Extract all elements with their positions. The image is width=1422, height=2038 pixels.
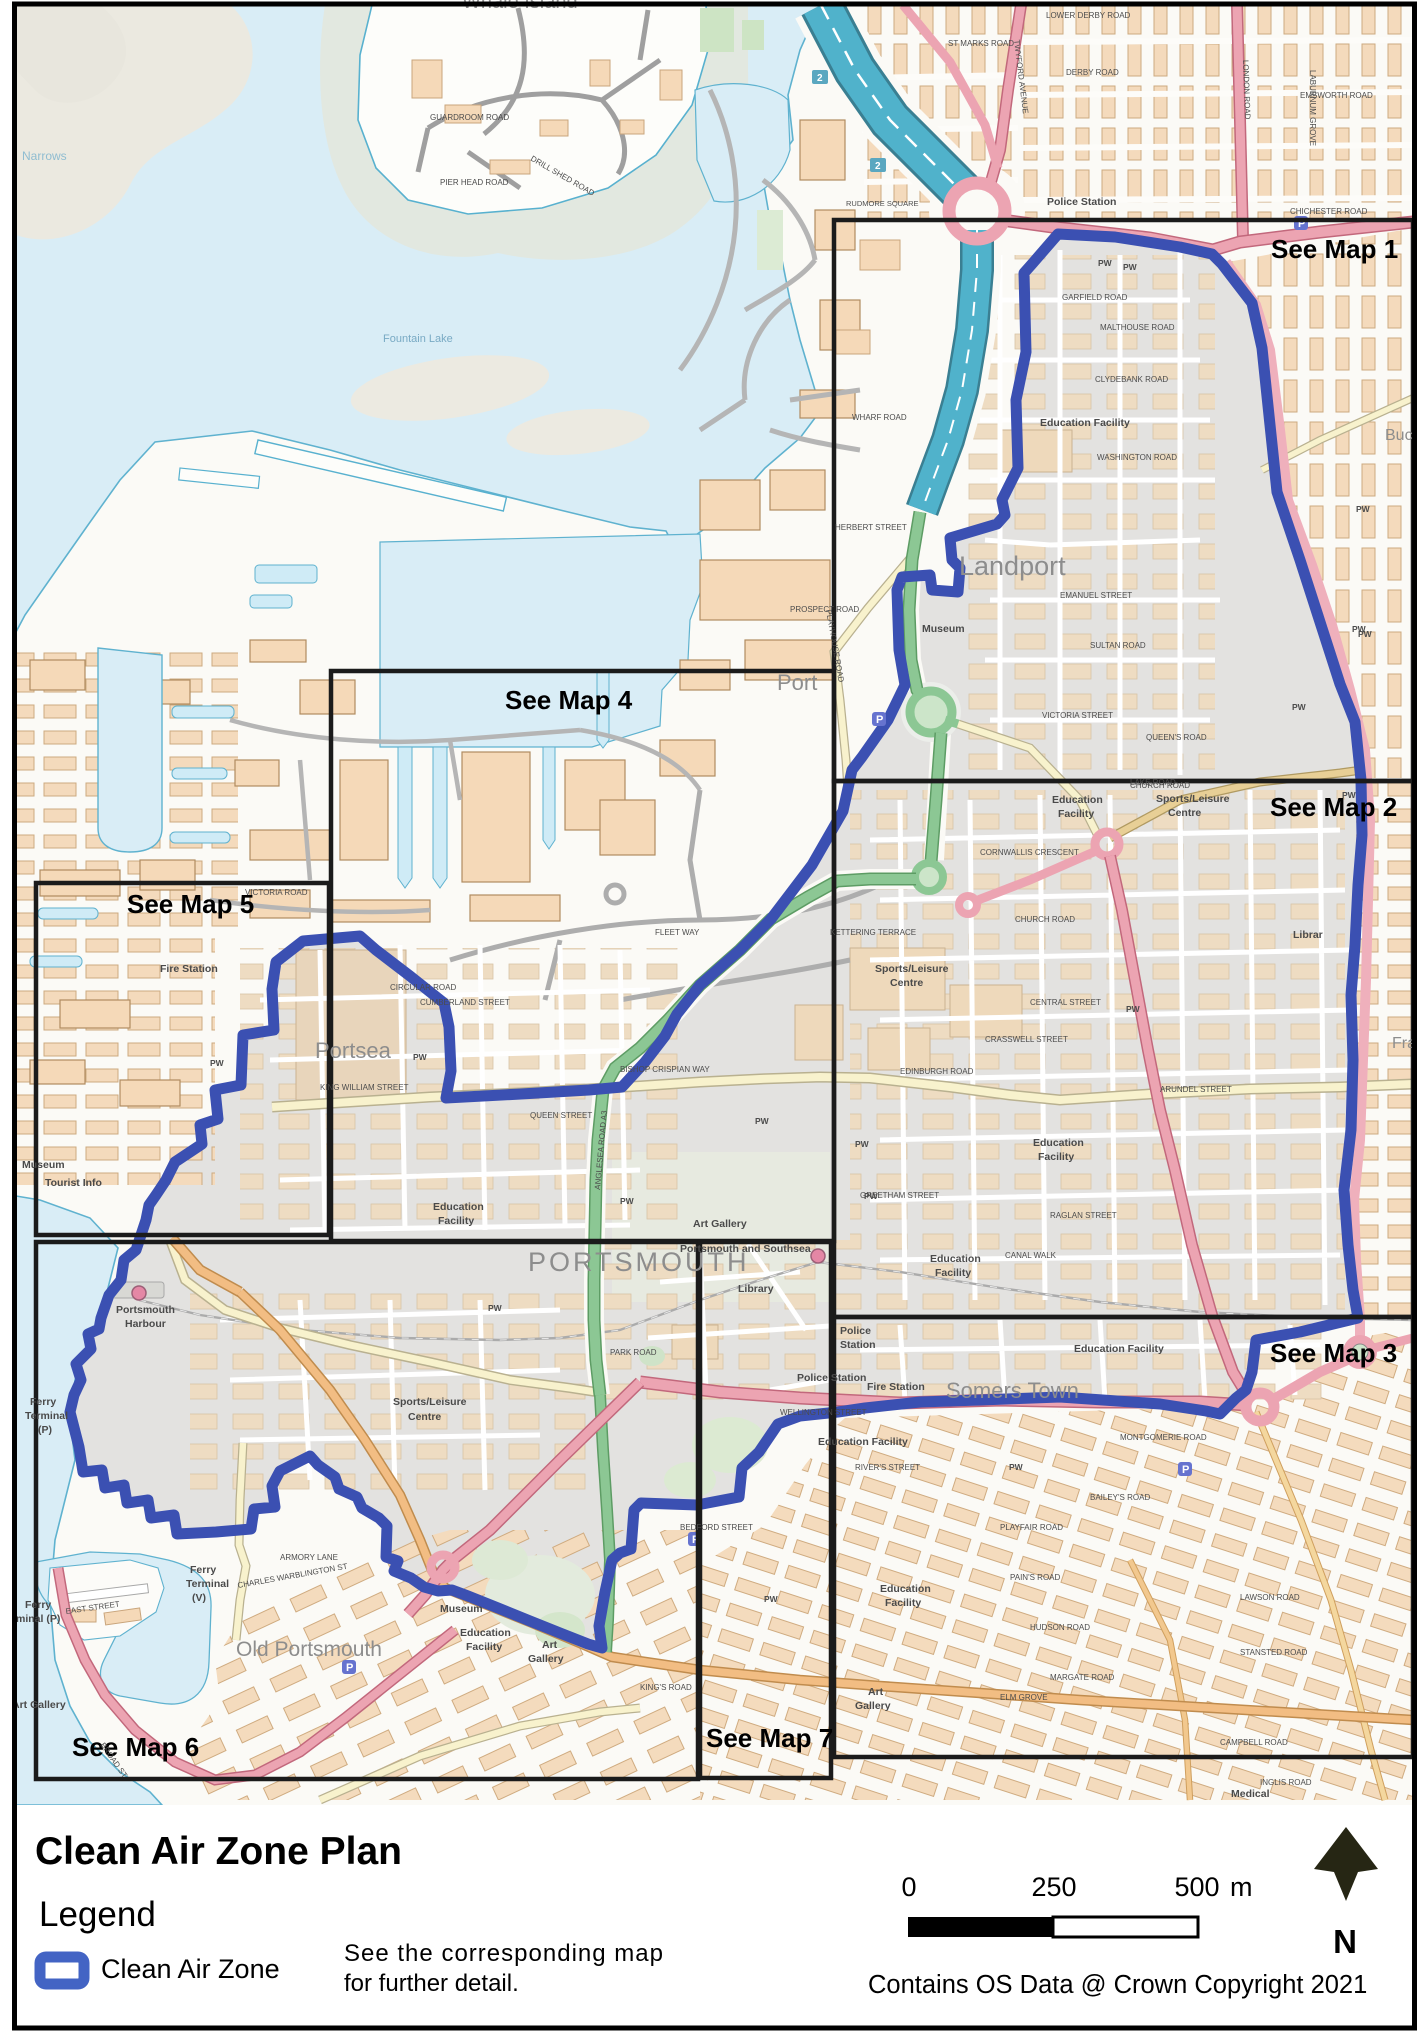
svg-text:Education Facility: Education Facility — [818, 1436, 908, 1448]
svg-text:Centre: Centre — [890, 977, 923, 989]
svg-text:PW: PW — [764, 1594, 779, 1604]
svg-text:WHARF ROAD: WHARF ROAD — [852, 413, 907, 422]
svg-text:CORNWALLIS CRESCENT: CORNWALLIS CRESCENT — [980, 848, 1079, 857]
svg-text:Landport: Landport — [959, 551, 1066, 581]
svg-text:Fire Station: Fire Station — [867, 1381, 925, 1393]
svg-text:Police Station: Police Station — [1047, 196, 1116, 208]
svg-text:PW: PW — [1098, 258, 1113, 268]
svg-text:MONTGOMERIE ROAD: MONTGOMERIE ROAD — [1120, 1433, 1207, 1442]
svg-text:Station: Station — [840, 1339, 876, 1351]
svg-text:PLAYFAIR ROAD: PLAYFAIR ROAD — [1000, 1523, 1063, 1532]
svg-text:VICTORIA ROAD: VICTORIA ROAD — [245, 888, 308, 897]
svg-text:See Map 6: See Map 6 — [72, 1732, 199, 1762]
svg-text:PW: PW — [210, 1058, 225, 1068]
svg-text:minal (P): minal (P) — [16, 1613, 60, 1625]
svg-text:PARK ROAD: PARK ROAD — [610, 1348, 657, 1357]
svg-text:Fountain Lake: Fountain Lake — [383, 333, 453, 345]
svg-text:EMANUEL STREET: EMANUEL STREET — [1060, 591, 1132, 600]
svg-text:See the corresponding map: See the corresponding map — [344, 1940, 663, 1967]
svg-text:PW: PW — [1123, 262, 1138, 272]
svg-text:CENTRAL STREET: CENTRAL STREET — [1030, 998, 1101, 1007]
svg-text:KETTERING TERRACE: KETTERING TERRACE — [830, 928, 916, 937]
svg-text:2: 2 — [817, 73, 823, 84]
svg-text:WASHINGTON ROAD: WASHINGTON ROAD — [1097, 453, 1177, 462]
svg-text:See Map 3: See Map 3 — [1270, 1338, 1397, 1368]
svg-text:Librar: Librar — [1293, 929, 1323, 941]
svg-text:Centre: Centre — [1168, 807, 1201, 819]
svg-text:QUEEN STREET: QUEEN STREET — [530, 1111, 592, 1120]
svg-text:Library: Library — [738, 1283, 774, 1295]
svg-text:PW: PW — [1356, 504, 1371, 514]
svg-text:Museum: Museum — [440, 1603, 483, 1615]
svg-text:Facility: Facility — [1058, 808, 1094, 820]
svg-text:Somers Town: Somers Town — [946, 1378, 1079, 1403]
svg-text:See Map 2: See Map 2 — [1270, 792, 1397, 822]
svg-text:BISHOP CRISPIAN WAY: BISHOP CRISPIAN WAY — [620, 1065, 710, 1074]
svg-text:PIER HEAD ROAD: PIER HEAD ROAD — [440, 178, 509, 187]
svg-text:GUARDROOM ROAD: GUARDROOM ROAD — [430, 113, 509, 122]
svg-text:Sports/Leisure: Sports/Leisure — [1156, 793, 1230, 805]
svg-text:CIRCULAR ROAD: CIRCULAR ROAD — [390, 983, 456, 992]
svg-text:(P): (P) — [38, 1424, 52, 1436]
svg-text:500: 500 — [1174, 1872, 1219, 1902]
svg-text:See Map 1: See Map 1 — [1271, 234, 1398, 264]
svg-text:PW: PW — [1292, 702, 1307, 712]
svg-text:Clean Air Zone: Clean Air Zone — [101, 1954, 280, 1984]
svg-text:BAILEY'S ROAD: BAILEY'S ROAD — [1090, 1493, 1150, 1502]
svg-text:PW: PW — [855, 1139, 870, 1149]
svg-text:Buc: Buc — [1385, 427, 1413, 444]
svg-text:Contains OS Data @ Crown Copyr: Contains OS Data @ Crown Copyright 2021 — [868, 1971, 1367, 1999]
svg-text:Art: Art — [542, 1639, 558, 1651]
svg-text:PW: PW — [413, 1052, 428, 1062]
svg-text:P: P — [876, 714, 883, 726]
svg-text:Ferry: Ferry — [25, 1599, 51, 1611]
svg-text:Education Facility: Education Facility — [1040, 417, 1130, 429]
svg-text:MALTHOUSE ROAD: MALTHOUSE ROAD — [1100, 323, 1175, 332]
svg-text:PW: PW — [1358, 629, 1373, 639]
svg-text:Portsea: Portsea — [315, 1038, 392, 1063]
svg-text:CUMBERLAND STREET: CUMBERLAND STREET — [420, 998, 510, 1007]
svg-text:Portsmouth: Portsmouth — [116, 1304, 175, 1316]
svg-text:Legend: Legend — [39, 1895, 156, 1934]
svg-text:RUDMORE SQUARE: RUDMORE SQUARE — [846, 199, 919, 208]
svg-text:Facility: Facility — [935, 1267, 971, 1279]
svg-text:Police: Police — [840, 1325, 871, 1337]
svg-text:CLYDEBANK ROAD: CLYDEBANK ROAD — [1095, 375, 1168, 384]
svg-text:Police Station: Police Station — [797, 1372, 866, 1384]
svg-text:N: N — [1333, 1923, 1357, 1960]
svg-text:PW: PW — [488, 1303, 503, 1313]
svg-text:Gallery: Gallery — [855, 1700, 891, 1712]
svg-text:Education: Education — [1052, 794, 1103, 806]
svg-text:2: 2 — [875, 161, 881, 172]
svg-text:BEDFORD STREET: BEDFORD STREET — [680, 1523, 753, 1532]
svg-text:Narrows: Narrows — [22, 149, 67, 163]
svg-text:ELM GROVE: ELM GROVE — [1000, 1693, 1048, 1702]
svg-text:m: m — [1230, 1872, 1253, 1902]
svg-text:QUEEN'S ROAD: QUEEN'S ROAD — [1146, 733, 1207, 742]
svg-text:ARMORY LANE: ARMORY LANE — [280, 1553, 338, 1562]
svg-text:See Map 4: See Map 4 — [505, 685, 633, 715]
svg-text:LAKE ROAD: LAKE ROAD — [1130, 778, 1176, 787]
svg-text:KING WILLIAM STREET: KING WILLIAM STREET — [320, 1083, 409, 1092]
svg-text:Terminal: Terminal — [25, 1410, 68, 1422]
svg-text:LOWER DERBY ROAD: LOWER DERBY ROAD — [1046, 11, 1131, 20]
svg-text:INGLIS ROAD: INGLIS ROAD — [1260, 1778, 1312, 1787]
svg-text:EDINBURGH ROAD: EDINBURGH ROAD — [900, 1067, 974, 1076]
svg-text:Tourist Info: Tourist Info — [45, 1177, 102, 1189]
svg-text:PW: PW — [620, 1196, 635, 1206]
svg-text:Education: Education — [460, 1627, 511, 1639]
svg-text:ST MARKS ROAD: ST MARKS ROAD — [948, 39, 1014, 48]
svg-text:PROSPECT ROAD: PROSPECT ROAD — [790, 605, 859, 614]
svg-text:Old Portsmouth: Old Portsmouth — [236, 1638, 382, 1661]
svg-text:(V): (V) — [192, 1592, 206, 1604]
svg-text:SULTAN ROAD: SULTAN ROAD — [1090, 641, 1146, 650]
svg-text:Art: Art — [868, 1686, 884, 1698]
svg-text:EMSWORTH ROAD: EMSWORTH ROAD — [1300, 91, 1373, 100]
svg-text:Ferry: Ferry — [190, 1564, 216, 1576]
svg-text:Facility: Facility — [1038, 1151, 1074, 1163]
svg-text:for further detail.: for further detail. — [344, 1970, 519, 1997]
svg-text:Museum: Museum — [922, 623, 965, 635]
svg-text:Education: Education — [880, 1583, 931, 1595]
svg-text:HUDSON ROAD: HUDSON ROAD — [1030, 1623, 1090, 1632]
svg-text:Fire Station: Fire Station — [160, 963, 218, 975]
svg-text:Museum: Museum — [22, 1159, 65, 1171]
svg-text:CHICHESTER ROAD: CHICHESTER ROAD — [1290, 207, 1368, 216]
svg-text:Centre: Centre — [408, 1411, 441, 1423]
svg-text:See Map 7: See Map 7 — [706, 1723, 833, 1753]
svg-text:PAIN'S ROAD: PAIN'S ROAD — [1010, 1573, 1061, 1582]
svg-text:VICTORIA STREET: VICTORIA STREET — [1042, 711, 1113, 720]
svg-text:WELLINGTON STREET: WELLINGTON STREET — [780, 1408, 867, 1417]
svg-text:MARGATE ROAD: MARGATE ROAD — [1050, 1673, 1115, 1682]
svg-text:Education: Education — [433, 1201, 484, 1213]
svg-text:PW: PW — [755, 1116, 770, 1126]
svg-text:HERBERT STREET: HERBERT STREET — [835, 523, 907, 532]
svg-text:Art Gallery: Art Gallery — [12, 1699, 66, 1711]
svg-text:PW: PW — [1342, 790, 1357, 800]
svg-text:Gallery: Gallery — [528, 1653, 564, 1665]
svg-text:0: 0 — [901, 1872, 916, 1902]
svg-text:Clean Air Zone Plan: Clean Air Zone Plan — [35, 1830, 402, 1873]
svg-text:Art Gallery: Art Gallery — [693, 1218, 747, 1230]
svg-text:CHURCH ROAD: CHURCH ROAD — [1015, 915, 1075, 924]
svg-text:RAGLAN STREET: RAGLAN STREET — [1050, 1211, 1117, 1220]
svg-text:Portsmouth and Southsea: Portsmouth and Southsea — [680, 1243, 811, 1255]
svg-text:PW: PW — [1126, 1004, 1141, 1014]
svg-text:LAWSON ROAD: LAWSON ROAD — [1240, 1593, 1300, 1602]
svg-text:PW: PW — [1009, 1462, 1024, 1472]
svg-text:Facility: Facility — [466, 1641, 502, 1653]
svg-text:CANAL WALK: CANAL WALK — [1005, 1251, 1057, 1260]
svg-text:250: 250 — [1031, 1872, 1076, 1902]
svg-text:Education Facility: Education Facility — [1074, 1343, 1164, 1355]
svg-text:Medical: Medical — [1231, 1788, 1270, 1800]
svg-text:Sports/Leisure: Sports/Leisure — [875, 963, 949, 975]
svg-text:Sports/Leisure: Sports/Leisure — [393, 1396, 467, 1408]
svg-text:Ferry: Ferry — [30, 1396, 56, 1408]
svg-text:RIVER'S STREET: RIVER'S STREET — [855, 1463, 920, 1472]
svg-text:DERBY ROAD: DERBY ROAD — [1066, 68, 1119, 77]
svg-text:See Map 5: See Map 5 — [127, 889, 254, 919]
svg-text:Education: Education — [1033, 1137, 1084, 1149]
svg-text:Facility: Facility — [438, 1215, 474, 1227]
svg-text:CRASSWELL STREET: CRASSWELL STREET — [985, 1035, 1068, 1044]
svg-text:KING'S ROAD: KING'S ROAD — [640, 1683, 692, 1692]
svg-text:STANSTED ROAD: STANSTED ROAD — [1240, 1648, 1308, 1657]
svg-text:P: P — [1182, 1464, 1189, 1476]
svg-text:Facility: Facility — [885, 1597, 921, 1609]
svg-text:CAMPBELL ROAD: CAMPBELL ROAD — [1220, 1738, 1288, 1747]
svg-text:ARUNDEL STREET: ARUNDEL STREET — [1160, 1085, 1232, 1094]
svg-text:LABURNUM GROVE: LABURNUM GROVE — [1308, 70, 1317, 146]
svg-text:Education: Education — [930, 1253, 981, 1265]
svg-text:FLEET WAY: FLEET WAY — [655, 928, 700, 937]
svg-text:GREETHAM STREET: GREETHAM STREET — [860, 1191, 939, 1200]
svg-text:Port: Port — [777, 670, 817, 695]
svg-text:P: P — [346, 1662, 353, 1674]
svg-text:Terminal: Terminal — [186, 1578, 229, 1590]
svg-text:GARFIELD ROAD: GARFIELD ROAD — [1062, 293, 1128, 302]
svg-text:Harbour: Harbour — [125, 1318, 166, 1330]
